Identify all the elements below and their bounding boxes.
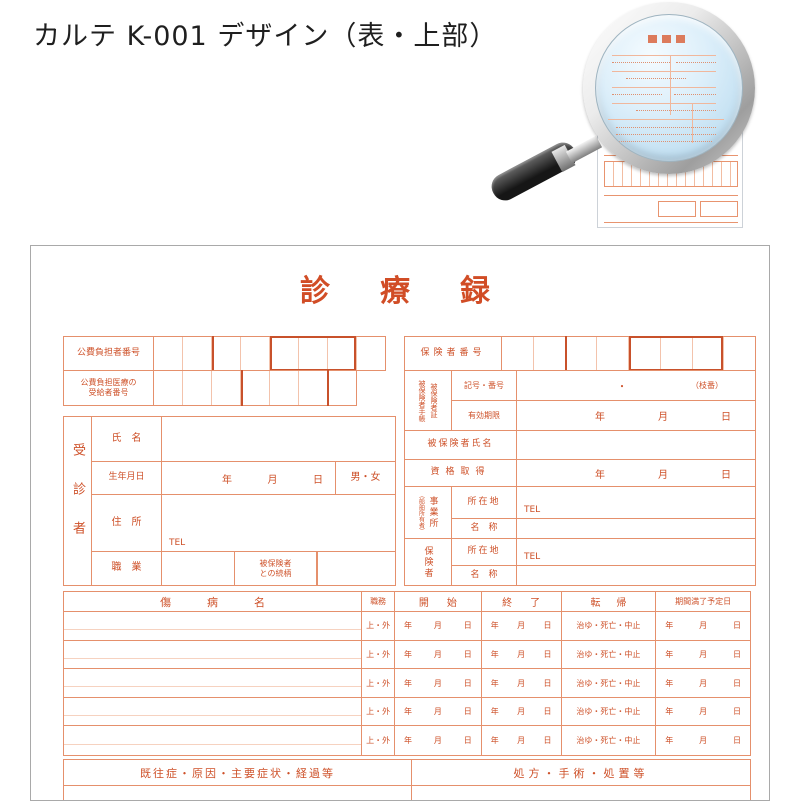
- insurer-location-row: 所在地 TEL: [452, 539, 755, 566]
- month-label: 月: [658, 466, 668, 481]
- digit-cell: [356, 337, 385, 370]
- start-date-cell: 年 月 日: [394, 669, 481, 697]
- insurer-number-row: 保険者番号: [404, 336, 756, 371]
- disease-name-cell: [64, 641, 361, 669]
- branch-number-note: （枝番）: [691, 380, 755, 391]
- outcome-cell: 治ゆ・死亡・中止: [561, 612, 656, 640]
- day-label: 日: [544, 620, 552, 631]
- workplace-name-value: [517, 519, 755, 538]
- history-column: 既往症・原因・主要症状・経過等: [64, 760, 412, 801]
- relation-label: 被保険者 との続柄: [234, 552, 317, 585]
- disease-table-row: 上・外 年 月 日 年 月 日 治ゆ・死亡・中止 年 月 日: [64, 641, 750, 670]
- label-text: 資格取得: [430, 467, 490, 478]
- label-text: 事業所: [427, 496, 440, 529]
- patient-job-row: 職 業 被保険者 との続柄: [92, 552, 395, 585]
- header-outcome: 転帰: [561, 592, 656, 611]
- label-text: 住 所: [112, 517, 142, 530]
- thick-divider: [212, 336, 214, 371]
- end-date-cell: 年 月 日: [481, 698, 561, 726]
- month-label: 月: [699, 649, 707, 660]
- lens-form-line: [616, 141, 712, 142]
- lens-title-mark: [648, 35, 657, 43]
- symbol-number-value: ・ （枝番）: [517, 371, 755, 400]
- expiry-date: 年 月 日: [656, 612, 750, 640]
- year-label: 年: [404, 706, 412, 717]
- patient-birth-label: 生年月日: [92, 462, 162, 494]
- day-label: 日: [733, 649, 741, 660]
- year-label: 年: [404, 678, 412, 689]
- workplace-label: （船舶所有者） 事業所: [405, 487, 452, 538]
- expiry-date-cell: 年 月 日: [655, 726, 750, 755]
- month-label: 月: [434, 706, 442, 717]
- workplace-location-row: 所在地 TEL: [452, 487, 755, 519]
- year-label: 年: [404, 620, 412, 631]
- end-date-cell: 年 月 日: [481, 726, 561, 755]
- label-text: 公費負担医療の: [81, 378, 137, 388]
- thick-box: [629, 336, 724, 371]
- thick-divider: [565, 336, 567, 371]
- start-date-cell: 年 月 日: [394, 698, 481, 726]
- expiry-date: 年 月 日: [656, 698, 750, 726]
- label-text: 名 称: [470, 570, 497, 581]
- year-label: 年: [491, 620, 499, 631]
- patient-name-row: 氏 名: [92, 417, 395, 462]
- writing-guide-line: [64, 744, 361, 745]
- start-date-cell: 年 月 日: [394, 641, 481, 669]
- duty-cell: 上・外: [361, 612, 394, 640]
- label-text: 名 称: [470, 523, 497, 534]
- lens-form-line: [626, 78, 686, 79]
- day-label: 日: [733, 678, 741, 689]
- lens-form-line: [674, 94, 716, 95]
- expiry-date: 年 月 日: [656, 641, 750, 669]
- start-date-cell: 年 月 日: [394, 726, 481, 755]
- header-end: 終了: [481, 592, 561, 611]
- digit-cell: [723, 337, 755, 370]
- screenshot-root: カルテ K-001 デザイン（表・上部） 診 療 録 公費負担者番号: [0, 0, 800, 800]
- duty-cell: 上・外: [361, 726, 394, 755]
- month-label: 月: [699, 735, 707, 746]
- org-name-label: 名 称: [452, 519, 517, 538]
- start-date: 年 月 日: [395, 698, 481, 726]
- label-text: 生年月日: [108, 472, 144, 483]
- patient-job-value: [162, 552, 234, 585]
- digit-cell: [211, 371, 240, 405]
- digit-cell: [565, 337, 597, 370]
- expiry-date-cell: 年 月 日: [655, 641, 750, 669]
- mini-form-box: [700, 201, 738, 217]
- history-header: 既往症・原因・主要症状・経過等: [64, 760, 411, 786]
- disease-table-row: 上・外 年 月 日 年 月 日 治ゆ・死亡・中止 年 月 日: [64, 612, 750, 641]
- lens-form-line: [616, 134, 716, 135]
- insured-card-block: 被保険者手帳 被保険者証 記号・番号 ・ （枝番） 有効期限: [404, 370, 756, 431]
- expiry-date-cell: 年 月 日: [655, 669, 750, 697]
- public-recipient-number-row: 公費負担医療の 受給者番号: [63, 370, 357, 406]
- lens-form-line: [612, 55, 716, 56]
- year-label: 年: [595, 466, 605, 481]
- qualification-date: 年 月 日: [517, 460, 755, 486]
- prescription-header: 処方・手術・処置等: [412, 760, 750, 786]
- year-label: 年: [491, 678, 499, 689]
- day-label: 日: [733, 735, 741, 746]
- disease-name-cell: [64, 669, 361, 697]
- workplace-block: （船舶所有者） 事業所 所在地 TEL 名 称: [404, 486, 756, 539]
- lens-form-line: [692, 103, 693, 143]
- lens-form-line: [612, 62, 670, 63]
- lens-form-line: [616, 127, 716, 128]
- validity-date: 年 月 日: [517, 401, 755, 430]
- insurer-name-row: 名 称: [452, 566, 755, 585]
- year-label: 年: [491, 735, 499, 746]
- symbol-number-label: 記号・番号: [452, 371, 517, 400]
- month-label: 月: [434, 735, 442, 746]
- day-label: 日: [313, 471, 323, 486]
- day-label: 日: [464, 620, 472, 631]
- karte-form-page: 診 療 録 公費負担者番号 公費負担医療の 受給者番号 保険者番号: [30, 245, 770, 801]
- insured-name-row: 被保険者氏名: [404, 430, 756, 460]
- header-disease-name: 傷病名: [64, 592, 361, 611]
- start-date: 年 月 日: [395, 726, 481, 755]
- insurer-number-label: 保険者番号: [405, 337, 502, 370]
- end-date: 年 月 日: [482, 726, 561, 755]
- digit-cell: [533, 337, 565, 370]
- month-label: 月: [434, 678, 442, 689]
- gender-options: 男・女: [351, 472, 381, 485]
- expiry-date-cell: 年 月 日: [655, 612, 750, 640]
- tel-label: TEL: [169, 538, 185, 548]
- writing-guide-line: [64, 658, 361, 659]
- start-date: 年 月 日: [395, 669, 481, 697]
- label-text: 受診者: [68, 443, 87, 560]
- disease-table-row: 上・外 年 月 日 年 月 日 治ゆ・死亡・中止 年 月 日: [64, 669, 750, 698]
- end-date: 年 月 日: [482, 698, 561, 726]
- start-date: 年 月 日: [395, 612, 481, 640]
- label-text: との続柄: [260, 569, 292, 579]
- start-date: 年 月 日: [395, 641, 481, 669]
- insured-name-value: [517, 431, 755, 459]
- day-label: 日: [544, 735, 552, 746]
- disease-table-header: 傷病名 職務 開始 終了 転帰 期間満了予定日: [64, 592, 750, 612]
- thick-box: [270, 336, 357, 371]
- qualification-row: 資格取得 年 月 日: [404, 459, 756, 487]
- qualification-label: 資格取得: [405, 460, 517, 486]
- day-label: 日: [464, 706, 472, 717]
- label-text: 公費負担者番号: [77, 348, 140, 359]
- lens-form-line: [670, 55, 671, 115]
- year-label: 年: [665, 649, 673, 660]
- month-label: 月: [268, 471, 278, 486]
- end-date: 年 月 日: [482, 669, 561, 697]
- month-label: 月: [699, 706, 707, 717]
- prescription-column: 処方・手術・処置等: [412, 760, 750, 801]
- thick-divider: [327, 370, 329, 406]
- month-label: 月: [517, 620, 525, 631]
- prescription-area: [412, 786, 750, 801]
- patient-address-row: 住 所 TEL: [92, 495, 395, 552]
- lens-form-line: [612, 103, 716, 104]
- label-text: 有効期限: [468, 411, 500, 421]
- insurer-block: 保険者 所在地 TEL 名 称: [404, 538, 756, 586]
- payer-number-cells: [154, 337, 385, 370]
- year-label: 年: [595, 408, 605, 423]
- digit-cell: [182, 371, 211, 405]
- header-start: 開始: [394, 592, 481, 611]
- digit-cell: [211, 337, 240, 370]
- month-label: 月: [517, 678, 525, 689]
- year-label: 年: [491, 706, 499, 717]
- insured-card-label: 被保険者手帳 被保険者証: [405, 371, 452, 430]
- magnifier-lens: [595, 14, 743, 162]
- month-label: 月: [699, 678, 707, 689]
- day-label: 日: [464, 735, 472, 746]
- year-label: 年: [404, 735, 412, 746]
- month-label: 月: [434, 649, 442, 660]
- writing-guide-line: [64, 715, 361, 716]
- label-text: 被保険者証: [429, 383, 439, 418]
- day-label: 日: [733, 620, 741, 631]
- month-label: 月: [434, 620, 442, 631]
- validity-row: 有効期限 年 月 日: [452, 401, 755, 430]
- validity-label: 有効期限: [452, 401, 517, 430]
- label-text: 被保険者: [260, 559, 292, 569]
- year-label: 年: [404, 649, 412, 660]
- start-date-cell: 年 月 日: [394, 612, 481, 640]
- workplace-name-row: 名 称: [452, 519, 755, 538]
- disease-name-cell: [64, 698, 361, 726]
- day-label: 日: [733, 706, 741, 717]
- day-label: 日: [721, 408, 731, 423]
- digit-cell: [182, 337, 211, 370]
- lens-form-line: [612, 71, 716, 72]
- end-date: 年 月 日: [482, 641, 561, 669]
- symbol-separator: ・: [617, 378, 627, 393]
- duty-cell: 上・外: [361, 669, 394, 697]
- duty-cell: 上・外: [361, 698, 394, 726]
- label-text: 所在地: [467, 497, 500, 508]
- day-label: 日: [544, 649, 552, 660]
- writing-guide-line: [64, 629, 361, 630]
- year-label: 年: [491, 649, 499, 660]
- outcome-cell: 治ゆ・死亡・中止: [561, 726, 656, 755]
- patient-job-label: 職 業: [92, 552, 162, 585]
- patient-block: 受診者 氏 名 生年月日 年 月: [63, 416, 396, 586]
- day-label: 日: [464, 649, 472, 660]
- end-date-cell: 年 月 日: [481, 641, 561, 669]
- symbol-number-row: 記号・番号 ・ （枝番）: [452, 371, 755, 401]
- end-date: 年 月 日: [482, 612, 561, 640]
- patient-group-label: 受診者: [64, 417, 92, 585]
- label-text: 記号・番号: [464, 381, 504, 391]
- digit-cell: [269, 371, 298, 405]
- insurer-number-cells: [502, 337, 755, 370]
- lens-form-line: [612, 94, 662, 95]
- digit-cell: [240, 337, 269, 370]
- birth-date: 年 月 日: [210, 471, 335, 486]
- writing-guide-line: [64, 686, 361, 687]
- workplace-note: （船舶所有者）: [417, 492, 426, 534]
- day-label: 日: [464, 678, 472, 689]
- tel-label: TEL: [524, 552, 540, 562]
- year-label: 年: [222, 471, 232, 486]
- tel-label: TEL: [524, 505, 540, 515]
- day-label: 日: [544, 678, 552, 689]
- lens-title-mark: [676, 35, 685, 43]
- disease-table-row: 上・外 年 月 日 年 月 日 治ゆ・死亡・中止 年 月 日: [64, 698, 750, 727]
- lens-form-line: [676, 62, 716, 63]
- duty-cell: 上・外: [361, 641, 394, 669]
- digit-cell: [154, 371, 182, 405]
- expiry-date: 年 月 日: [656, 726, 750, 755]
- recipient-number-cells: [154, 371, 356, 405]
- digit-cell: [154, 337, 182, 370]
- patient-name-value: [162, 417, 395, 461]
- label-text: 氏 名: [112, 433, 142, 446]
- month-label: 月: [658, 408, 668, 423]
- patient-birth-value: 年 月 日: [162, 462, 335, 494]
- location-label: 所在地: [452, 539, 517, 565]
- gender-cell: 男・女: [335, 462, 395, 494]
- workplace-location-value: TEL: [517, 487, 755, 518]
- month-label: 月: [517, 706, 525, 717]
- digit-cell: [502, 337, 533, 370]
- magnifier-rim: [583, 2, 755, 174]
- label-text: 受給者番号: [89, 388, 129, 398]
- header-expiry: 期間満了予定日: [655, 592, 750, 611]
- month-label: 月: [517, 735, 525, 746]
- expiry-date: 年 月 日: [656, 669, 750, 697]
- disease-table: 傷病名 職務 開始 終了 転帰 期間満了予定日 上・外 年 月 日 年 月: [63, 591, 751, 756]
- disease-table-body: 上・外 年 月 日 年 月 日 治ゆ・死亡・中止 年 月 日: [64, 612, 750, 755]
- disease-name-cell: [64, 612, 361, 640]
- mini-form-line: [604, 195, 738, 196]
- patient-birth-row: 生年月日 年 月 日 男・女: [92, 462, 395, 495]
- label-text: 被保険者手帳: [417, 380, 427, 422]
- day-label: 日: [721, 466, 731, 481]
- year-label: 年: [665, 620, 673, 631]
- relation-value: [317, 552, 395, 585]
- mini-form-line: [604, 222, 738, 223]
- outcome-cell: 治ゆ・死亡・中止: [561, 641, 656, 669]
- public-payer-number-row: 公費負担者番号: [63, 336, 386, 371]
- disease-name-cell: [64, 726, 361, 755]
- public-recipient-number-label: 公費負担医療の 受給者番号: [64, 371, 154, 405]
- patient-address-value: TEL: [162, 495, 395, 551]
- form-title: 診 療 録: [31, 266, 769, 310]
- patient-address-label: 住 所: [92, 495, 162, 551]
- digit-cell: [298, 371, 327, 405]
- insured-name-label: 被保険者氏名: [405, 431, 517, 459]
- history-area: [64, 786, 411, 801]
- month-label: 月: [517, 649, 525, 660]
- end-date-cell: 年 月 日: [481, 612, 561, 640]
- mini-form-box: [658, 201, 696, 217]
- digit-cell: [327, 371, 356, 405]
- digit-cell: [240, 371, 269, 405]
- year-label: 年: [665, 706, 673, 717]
- location-label: 所在地: [452, 487, 517, 518]
- insurer-label: 保険者: [405, 539, 452, 585]
- label-text: 保険者: [422, 546, 435, 579]
- bottom-section: 既往症・原因・主要症状・経過等 処方・手術・処置等: [63, 759, 751, 801]
- lens-form-line: [636, 110, 716, 111]
- label-text: 職 業: [112, 562, 142, 575]
- lens-form-line: [612, 87, 716, 88]
- label-text: 保険者番号: [420, 348, 485, 359]
- outcome-cell: 治ゆ・死亡・中止: [561, 698, 656, 726]
- disease-table-row: 上・外 年 月 日 年 月 日 治ゆ・死亡・中止 年 月 日: [64, 726, 750, 755]
- outcome-cell: 治ゆ・死亡・中止: [561, 669, 656, 697]
- thick-divider: [241, 370, 243, 406]
- header-duty: 職務: [361, 592, 394, 611]
- end-date-cell: 年 月 日: [481, 669, 561, 697]
- page-heading: カルテ K-001 デザイン（表・上部）: [33, 14, 497, 53]
- day-label: 日: [544, 706, 552, 717]
- org-name-label: 名 称: [452, 566, 517, 585]
- year-label: 年: [665, 735, 673, 746]
- lens-form-line: [608, 119, 724, 120]
- insurer-location-value: TEL: [517, 539, 755, 565]
- public-payer-number-label: 公費負担者番号: [64, 337, 154, 370]
- month-label: 月: [699, 620, 707, 631]
- label-text: 所在地: [467, 546, 500, 557]
- patient-name-label: 氏 名: [92, 417, 162, 461]
- expiry-date-cell: 年 月 日: [655, 698, 750, 726]
- lens-title-mark: [662, 35, 671, 43]
- digit-cell: [596, 337, 628, 370]
- year-label: 年: [665, 678, 673, 689]
- insurer-name-value: [517, 566, 755, 585]
- label-text: 被保険者氏名: [427, 439, 493, 450]
